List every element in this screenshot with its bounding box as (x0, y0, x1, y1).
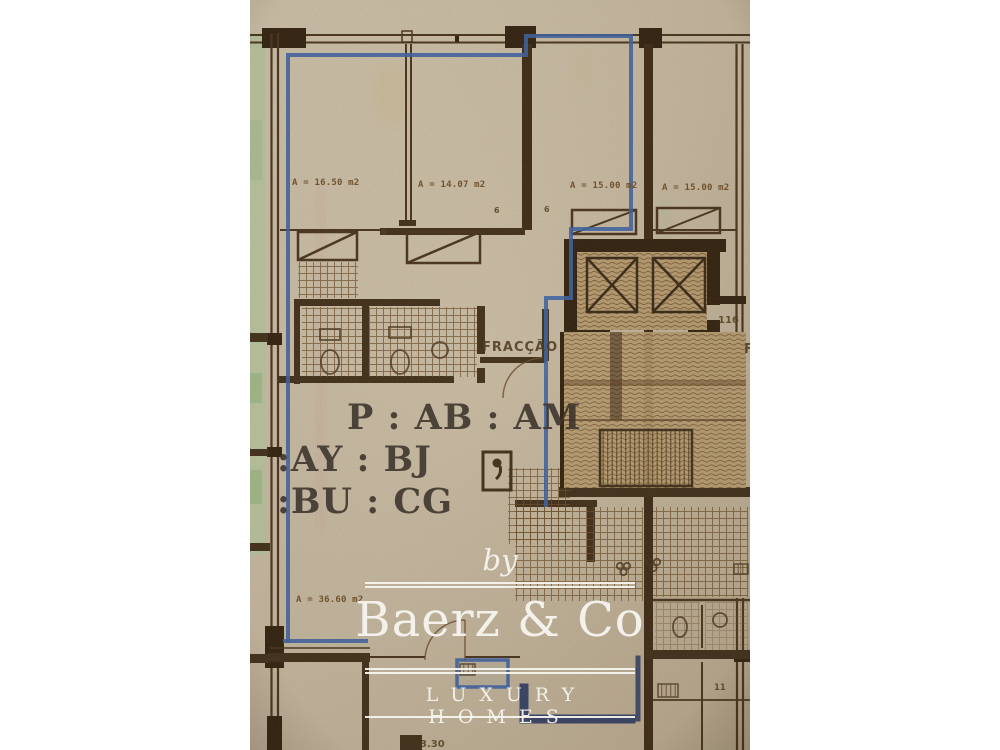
watermark-divider (365, 582, 635, 584)
floor-plan-photo: A = 16.50 m2 A = 14.07 m2 A = 15.00 m2 A… (250, 0, 750, 750)
watermark-divider (365, 668, 635, 670)
screenshot-canvas: A = 16.50 m2 A = 14.07 m2 A = 15.00 m2 A… (0, 0, 1000, 750)
watermark-divider (365, 672, 635, 674)
watermark-brand-text: Baerz & Co (355, 592, 645, 648)
watermark-divider (365, 716, 635, 718)
brand-watermark: by Baerz & Co LUXURY HOMES (355, 0, 645, 750)
watermark-divider (365, 586, 635, 588)
watermark-tagline-text: LUXURY HOMES (355, 684, 645, 728)
watermark-by-text: by (355, 543, 645, 577)
